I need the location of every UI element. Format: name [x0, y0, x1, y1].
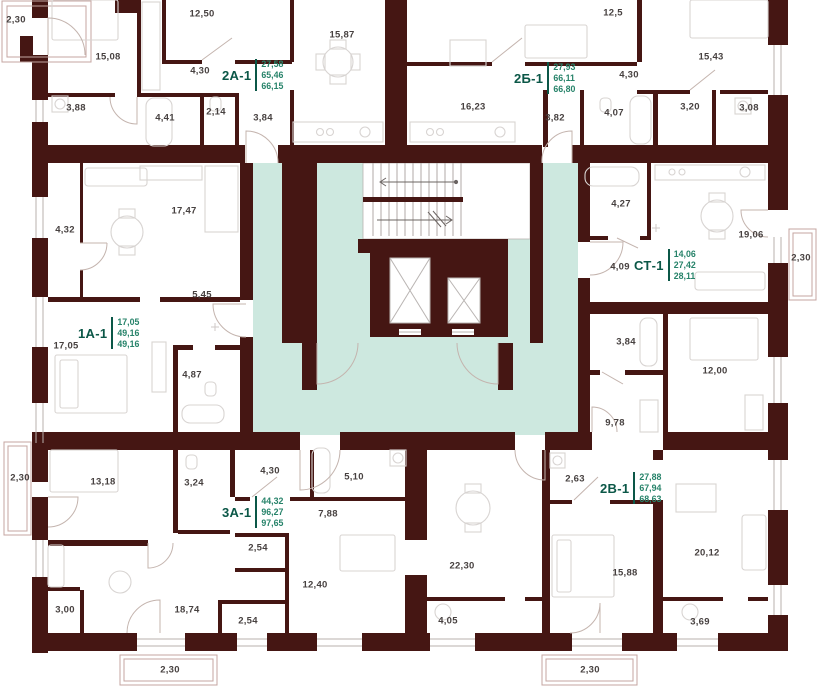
area-total: 68,63	[639, 494, 661, 504]
room-area-label: 15,88	[612, 568, 637, 578]
room-area-label: 17,47	[171, 206, 196, 216]
room-area-label: 4,41	[155, 113, 175, 123]
room-area-label: 3,84	[253, 113, 273, 123]
apartment-tag-2a1: 2A-1 27,58 65,46 66,15	[222, 59, 283, 91]
floor-plan: 2A-1 27,58 65,46 66,15 2Б-1 27,93 66,11 …	[0, 0, 819, 688]
area-main: 27,42	[674, 260, 696, 270]
room-area-label: 5,10	[344, 472, 364, 482]
room-area-label: 4,09	[610, 262, 630, 272]
area-total: 66,15	[261, 81, 283, 91]
room-area-label: 4,32	[55, 225, 75, 235]
area-living: 14,06	[674, 249, 696, 259]
room-area-label: 4,05	[438, 616, 458, 626]
room-area-label: 3,08	[739, 103, 759, 113]
apartment-code: 2Б-1	[514, 71, 543, 86]
room-area-label: 3,82	[545, 113, 565, 123]
area-total: 97,65	[261, 518, 283, 528]
area-total: 28,11	[674, 271, 696, 281]
area-main: 66,11	[553, 73, 575, 83]
area-main: 49,16	[117, 328, 139, 338]
apartment-tag-st1: СТ-1 14,06 27,42 28,11	[634, 249, 696, 281]
area-living: 17,05	[117, 317, 139, 327]
room-area-label: 2,30	[6, 15, 26, 25]
apartment-tag-3a1: 3A-1 44,32 96,27 97,65	[222, 496, 283, 528]
area-living: 27,93	[553, 62, 575, 72]
room-area-label: 2,54	[238, 616, 258, 626]
area-main: 65,46	[261, 70, 283, 80]
room-area-label: 12,40	[302, 580, 327, 590]
room-area-label: 4,30	[260, 466, 280, 476]
room-area-label: 7,88	[318, 509, 338, 519]
room-area-label: 3,20	[680, 102, 700, 112]
room-area-label: 18,74	[174, 605, 199, 615]
room-area-label: 2,63	[565, 474, 585, 484]
apartment-code: 1A-1	[78, 326, 107, 341]
area-living: 27,88	[639, 472, 661, 482]
apartment-code: 2B-1	[600, 481, 629, 496]
room-area-label: 2,14	[206, 107, 226, 117]
room-area-label: 15,87	[329, 30, 354, 40]
area-living: 44,32	[261, 496, 283, 506]
room-area-label: 4,87	[182, 370, 202, 380]
room-area-label: 13,18	[90, 477, 115, 487]
room-area-label: 15,08	[95, 52, 120, 62]
room-area-label: 22,30	[449, 561, 474, 571]
area-living: 27,58	[261, 59, 283, 69]
area-main: 67,94	[639, 483, 661, 493]
room-area-label: 2,30	[160, 665, 180, 675]
room-area-label: 12,00	[702, 366, 727, 376]
room-area-label: 2,30	[10, 473, 30, 483]
room-area-label: 17,05	[53, 341, 78, 351]
room-area-label: 3,84	[616, 337, 636, 347]
area-total: 66,80	[553, 84, 575, 94]
room-area-label: 12,5	[603, 8, 623, 18]
room-area-label: 4,30	[619, 70, 639, 80]
room-area-label: 16,23	[460, 102, 485, 112]
room-area-label: 3,88	[66, 103, 86, 113]
area-main: 96,27	[261, 507, 283, 517]
room-area-label: 4,30	[190, 66, 210, 76]
room-area-label: 3,24	[184, 478, 204, 488]
room-area-label: 2,30	[580, 665, 600, 675]
area-total: 49,16	[117, 339, 139, 349]
apartment-code: СТ-1	[634, 258, 664, 273]
apartment-tag-1a1: 1A-1 17,05 49,16 49,16	[78, 317, 139, 349]
room-area-label: 2,30	[791, 253, 811, 263]
room-area-label: 12,50	[189, 9, 214, 19]
apartment-code: 2A-1	[222, 68, 251, 83]
room-area-label: 3,00	[55, 605, 75, 615]
room-area-label: 4,07	[604, 108, 624, 118]
room-area-label: 9,78	[605, 418, 625, 428]
room-area-label: 5,45	[192, 290, 212, 300]
apartment-tag-2b1-cyr: 2Б-1 27,93 66,11 66,80	[514, 62, 575, 94]
room-area-label: 3,69	[690, 617, 710, 627]
room-area-label: 4,27	[611, 199, 631, 209]
apartment-tag-2v1: 2B-1 27,88 67,94 68,63	[600, 472, 661, 504]
apartment-code: 3A-1	[222, 505, 251, 520]
room-area-label: 2,54	[248, 543, 268, 553]
room-area-label: 20,12	[694, 548, 719, 558]
room-area-label: 19,06	[738, 230, 763, 240]
room-area-label: 15,43	[698, 52, 723, 62]
